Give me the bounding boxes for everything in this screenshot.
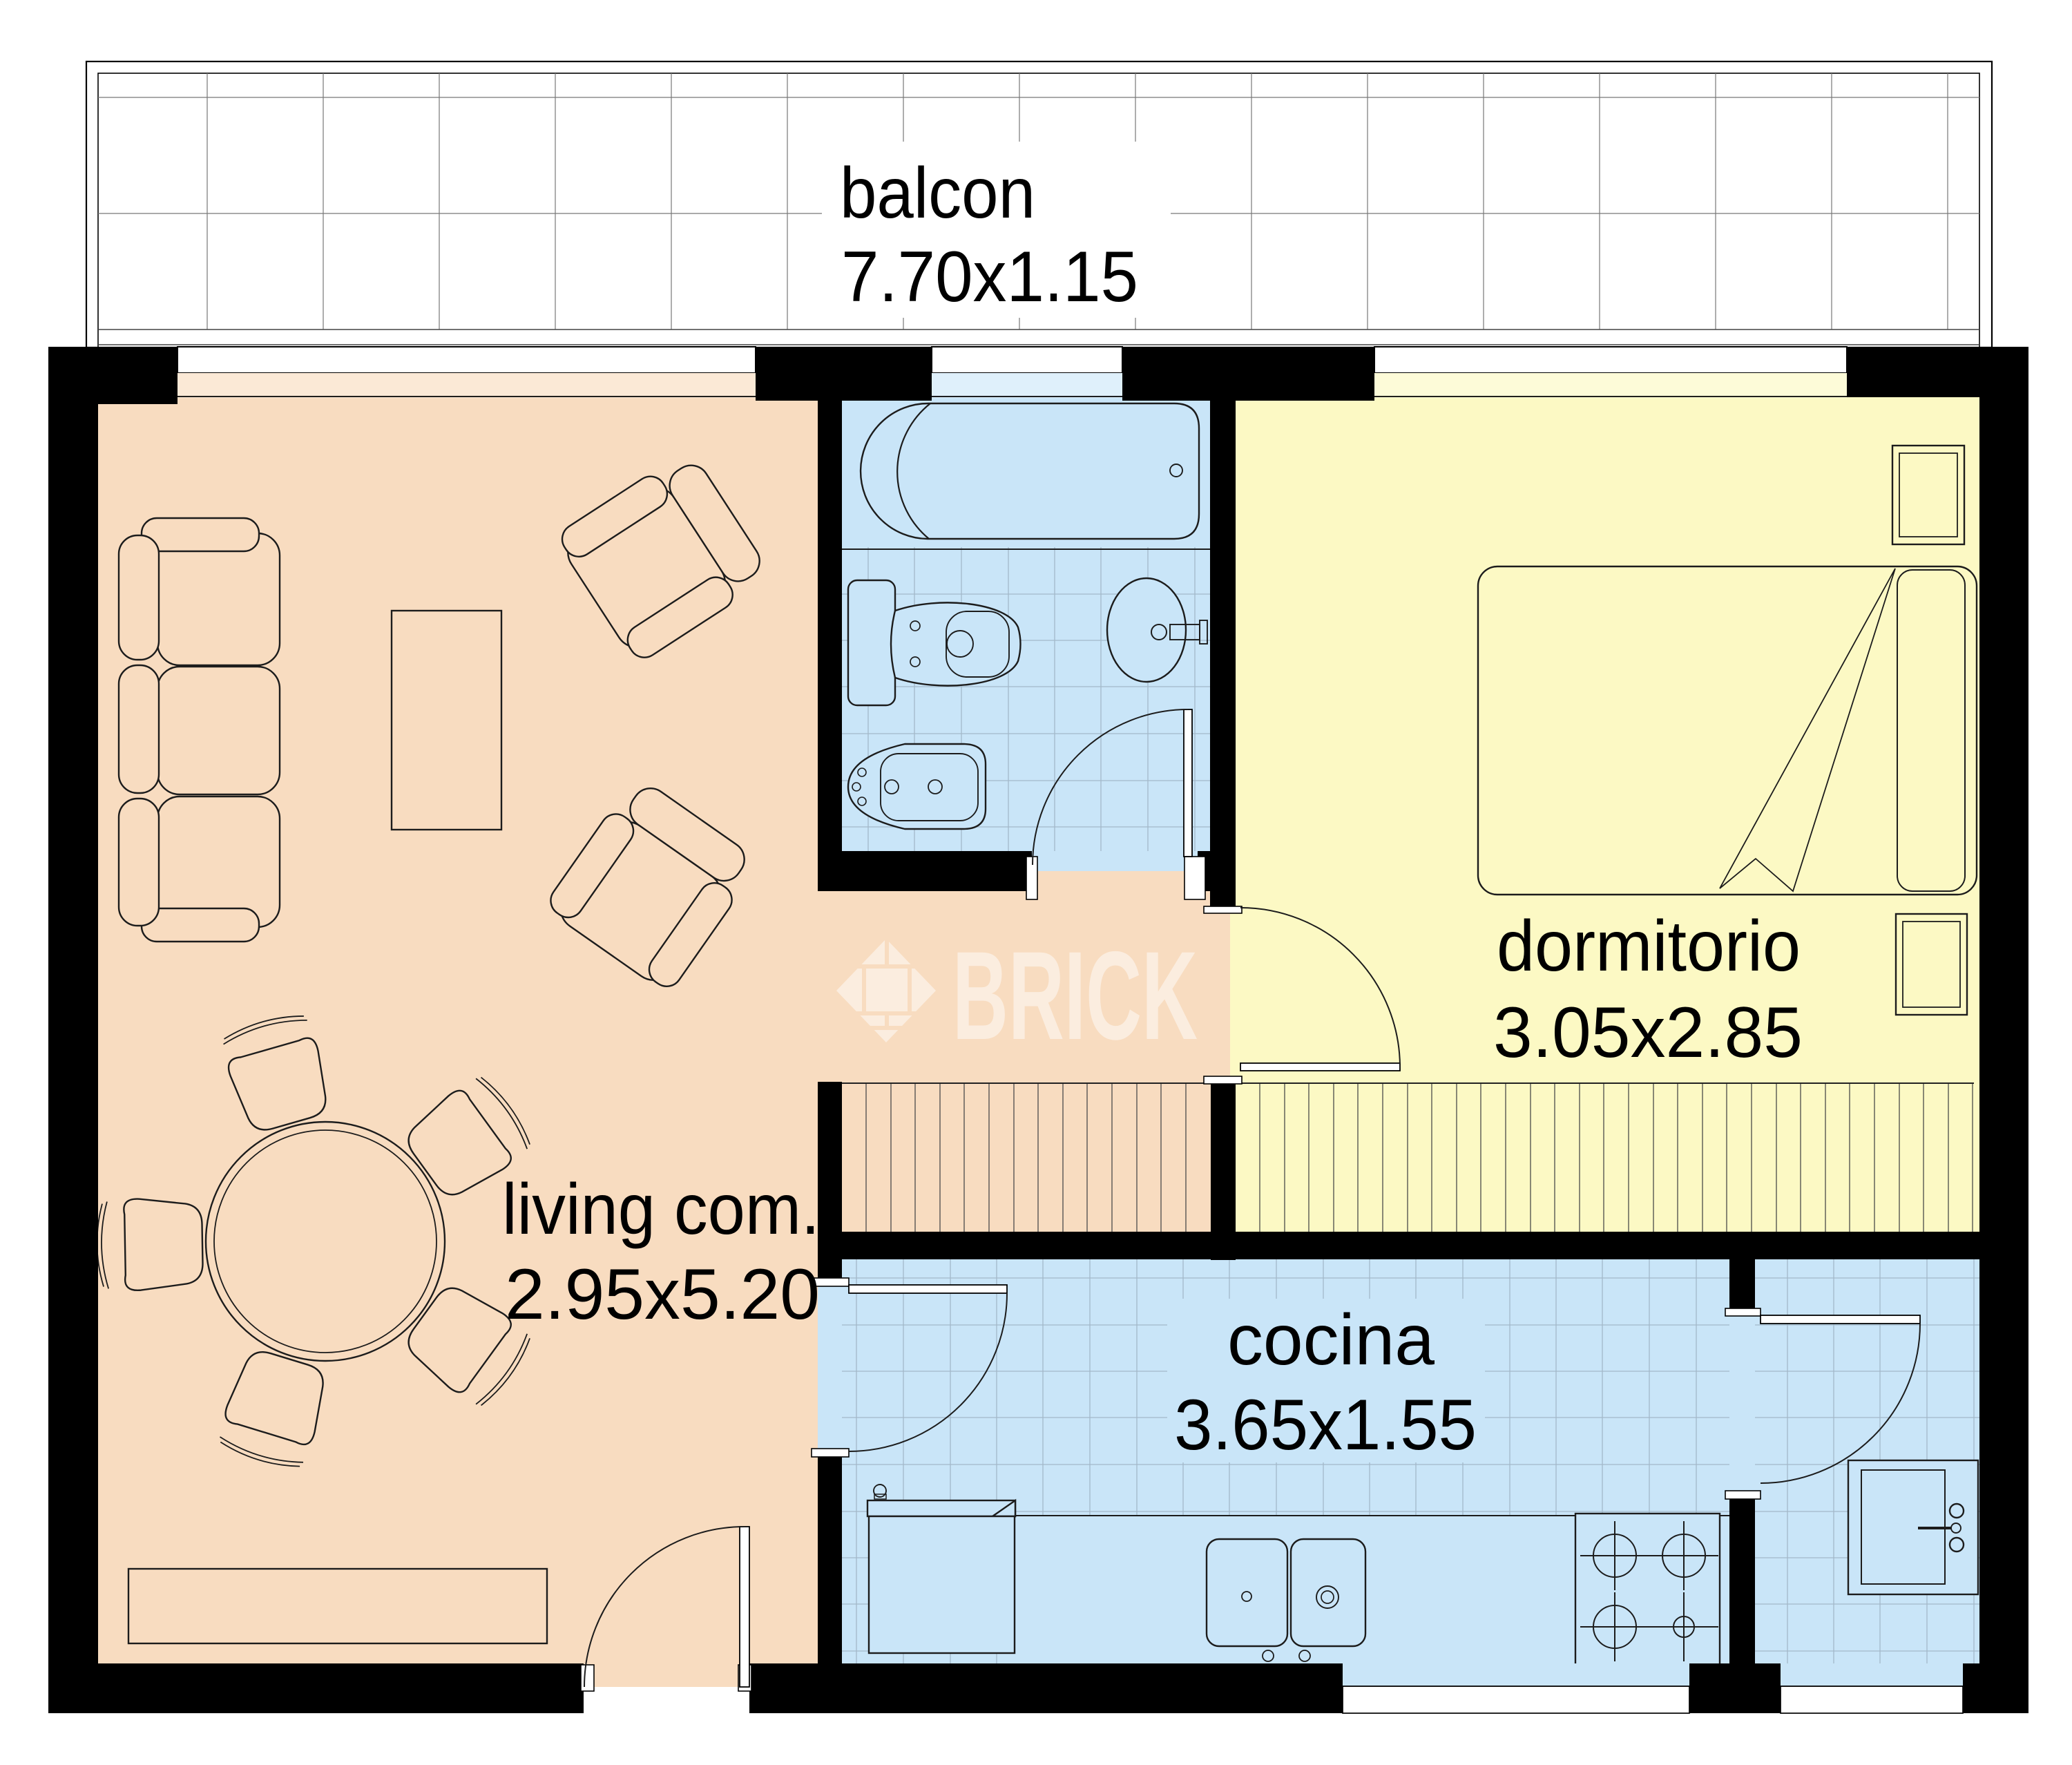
svg-text:3.05x2.85: 3.05x2.85 [1493, 993, 1803, 1073]
svg-text:living com.: living com. [502, 1170, 820, 1250]
svg-text:cocina: cocina [1227, 1300, 1435, 1380]
svg-text:dormitorio: dormitorio [1497, 906, 1801, 986]
svg-text:7.70x1.15: 7.70x1.15 [841, 237, 1138, 317]
svg-text:BRICK: BRICK [952, 925, 1198, 1066]
svg-text:balcon: balcon [840, 153, 1035, 233]
svg-text:3.65x1.55: 3.65x1.55 [1174, 1385, 1477, 1465]
svg-text:2.95x5.20: 2.95x5.20 [505, 1254, 820, 1335]
